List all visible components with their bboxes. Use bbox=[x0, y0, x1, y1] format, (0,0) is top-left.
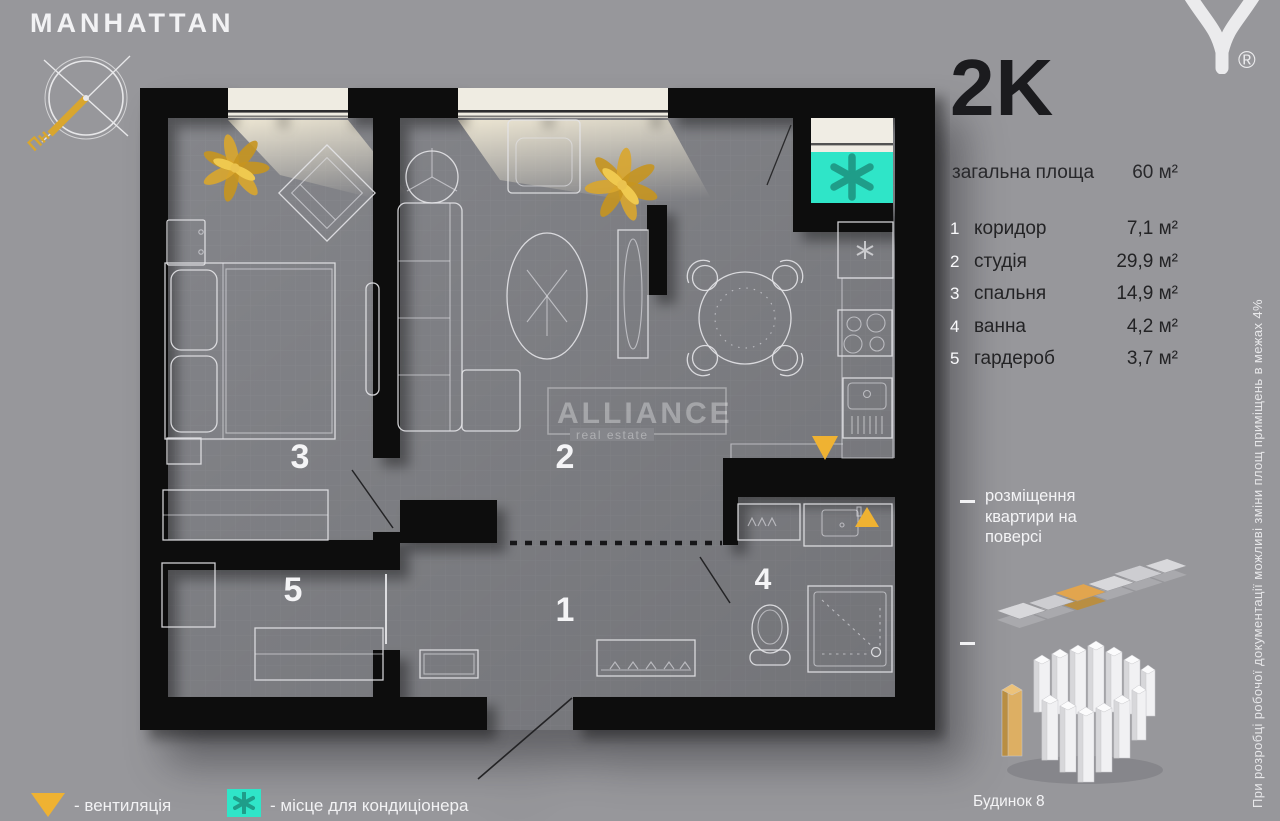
room-name: спальня bbox=[974, 283, 1116, 305]
floor-plan: ALLIANCE real estate 3 2 5 1 4 bbox=[130, 80, 950, 790]
building-tower bbox=[1096, 703, 1112, 772]
room-number: 4 bbox=[950, 317, 974, 337]
room-name: гардероб bbox=[974, 348, 1127, 370]
watermark-title: ALLIANCE bbox=[557, 397, 733, 430]
section-tick bbox=[960, 500, 975, 503]
vent-triangle-icon bbox=[30, 792, 66, 818]
room-label-4: 4 bbox=[755, 563, 772, 596]
building-tower bbox=[1114, 695, 1130, 758]
room-area: 4,2 м² bbox=[1127, 316, 1178, 338]
total-area-value: 60 м² bbox=[1132, 162, 1178, 184]
floorplan-page: { "project": { "title": "MANHATTAN", "co… bbox=[0, 0, 1280, 821]
room-area: 3,7 м² bbox=[1127, 348, 1178, 370]
room-number: 5 bbox=[950, 349, 974, 369]
room-area: 14,9 м² bbox=[1116, 283, 1178, 305]
watermark: ALLIANCE real estate bbox=[548, 388, 733, 442]
legend-ac-label: - місце для кондиціонера bbox=[270, 796, 468, 816]
apartment-type: 2K bbox=[950, 48, 1054, 128]
building-tower bbox=[1132, 685, 1146, 740]
room-label-3: 3 bbox=[291, 438, 310, 476]
building-tower bbox=[1078, 707, 1094, 782]
building-tower bbox=[1088, 641, 1104, 712]
developer-logo-icon: ® bbox=[1180, 0, 1264, 74]
registered-mark: ® bbox=[1238, 47, 1256, 74]
section-tick bbox=[960, 642, 975, 645]
building-caption: Будинок 8 bbox=[973, 793, 1045, 811]
ac-asterisk-icon bbox=[227, 789, 261, 817]
room-row: 3 спальня 14,9 м² bbox=[950, 283, 1178, 316]
compass-needle bbox=[50, 98, 86, 134]
disclaimer-text: При розробці робочої документації можлив… bbox=[1250, 92, 1265, 808]
total-area-row: загальна площа 60 м² bbox=[952, 162, 1178, 184]
building-graphic bbox=[990, 632, 1180, 790]
room-name: коридор bbox=[974, 218, 1127, 240]
compass-icon: Пн bbox=[22, 46, 144, 158]
room-number: 2 bbox=[950, 252, 974, 272]
room-label-2: 2 bbox=[556, 438, 575, 476]
room-area: 7,1 м² bbox=[1127, 218, 1178, 240]
page-title: MANHATTAN bbox=[30, 8, 234, 39]
legend-vent-label: - вентиляція bbox=[74, 796, 171, 816]
ac-unit bbox=[811, 152, 893, 203]
room-label-1: 1 bbox=[556, 591, 575, 629]
room-name: ванна bbox=[974, 316, 1127, 338]
room-number: 1 bbox=[950, 219, 974, 239]
room-row: 5 гардероб 3,7 м² bbox=[950, 348, 1178, 381]
watermark-subtitle: real estate bbox=[576, 428, 649, 442]
building-tower-highlighted bbox=[1002, 684, 1022, 756]
room-number: 3 bbox=[950, 284, 974, 304]
building-tower bbox=[1060, 701, 1076, 772]
room-name: студія bbox=[974, 251, 1116, 273]
room-row: 4 ванна 4,2 м² bbox=[950, 316, 1178, 349]
room-list: 1 коридор 7,1 м² 2 студія 29,9 м² 3 спал… bbox=[950, 218, 1178, 381]
room-label-5: 5 bbox=[284, 571, 303, 609]
building-tower bbox=[1042, 695, 1058, 760]
room-row: 2 студія 29,9 м² bbox=[950, 251, 1178, 284]
total-area-label: загальна площа bbox=[952, 162, 1094, 184]
room-area: 29,9 м² bbox=[1116, 251, 1178, 273]
room-row: 1 коридор 7,1 м² bbox=[950, 218, 1178, 251]
